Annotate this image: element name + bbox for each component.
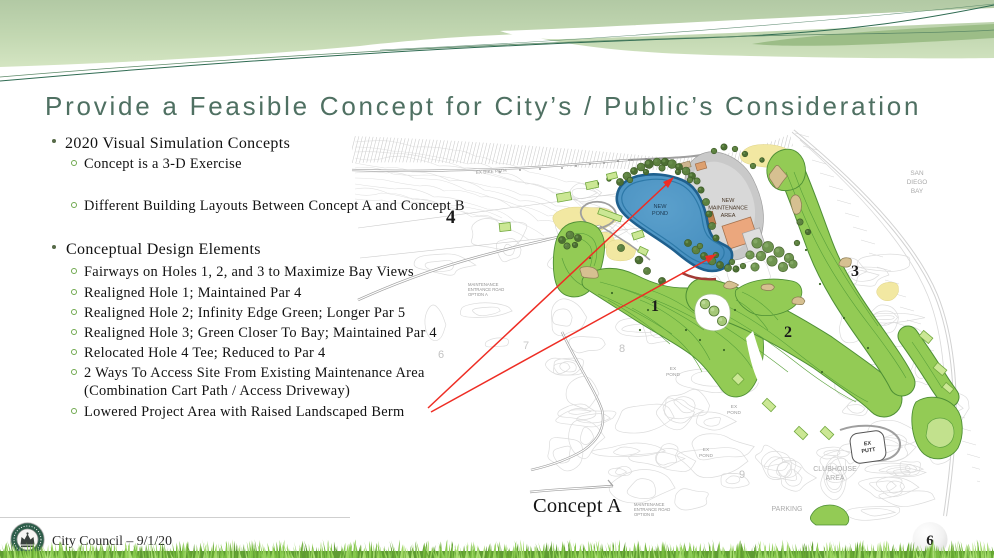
svg-text:2: 2 [784,324,792,341]
svg-text:OPTION B: OPTION B [634,512,654,517]
svg-text:AREA: AREA [825,475,844,482]
svg-text:MAINTENANCE: MAINTENANCE [708,206,748,212]
svg-text:EX: EX [731,404,738,410]
svg-text:NEW: NEW [653,204,667,210]
svg-text:POND: POND [727,410,741,416]
svg-text:DIEGO: DIEGO [907,179,928,186]
svg-text:9: 9 [739,469,745,481]
svg-text:EX: EX [670,366,677,372]
svg-text:NEW: NEW [722,198,736,204]
svg-text:EX: EX [864,441,872,448]
svg-text:PARKING: PARKING [772,506,803,513]
svg-text:POND: POND [652,211,668,217]
svg-text:3: 3 [851,263,859,280]
svg-text:POND: POND [666,372,680,378]
svg-text:1: 1 [651,298,659,315]
svg-text:POND: POND [699,453,713,459]
svg-text:OPTION A: OPTION A [468,292,488,297]
svg-text:BAY: BAY [911,188,924,195]
svg-text:8: 8 [619,343,625,355]
svg-text:AREA: AREA [721,213,736,219]
svg-text:SAN: SAN [910,170,924,177]
svg-text:EX: EX [703,447,710,453]
svg-text:7: 7 [523,340,529,352]
svg-text:CLUBHOUSE: CLUBHOUSE [813,466,857,473]
svg-text:6: 6 [438,349,444,361]
